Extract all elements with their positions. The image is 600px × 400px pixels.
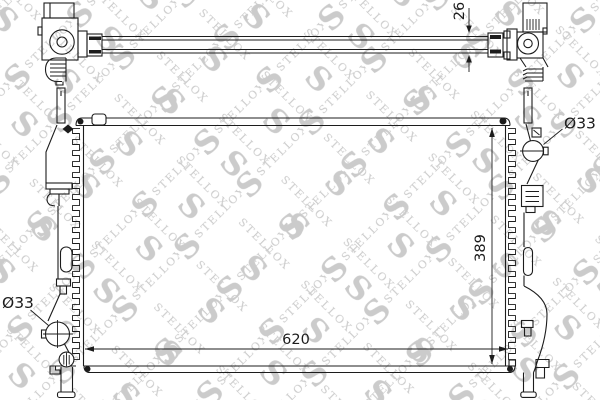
cap-end-boss (500, 118, 507, 125)
inlet-diameter-label: Ø33 (564, 115, 596, 133)
cap-end-boss (507, 366, 513, 372)
dimension-26-label: 26 (452, 2, 468, 20)
crossbar-right-hatch (490, 35, 501, 39)
mounting-foot-base (521, 392, 536, 397)
outlet-diameter-label: Ø33 (2, 294, 34, 312)
crossbar-left-hatch (89, 37, 101, 41)
crossbar-left-hatch (89, 50, 101, 54)
cap-step (509, 360, 516, 366)
cap-end-boss (85, 366, 91, 372)
dimension-620-label: 620 (282, 332, 310, 348)
pipe-side-tab (544, 147, 549, 155)
crossbar-right-hatch (490, 50, 501, 54)
cap-end-boss (78, 119, 84, 125)
radiator-technical-drawing: S STELLOX S STELLOX (0, 0, 600, 400)
mounting-foot-base (58, 392, 76, 398)
serration-teeth (508, 128, 516, 363)
filler-tab (92, 114, 106, 125)
dimension-389-label: 389 (473, 234, 489, 262)
serration-teeth (72, 128, 80, 363)
radiator-technical-drawing-page: S STELLOX S STELLOX (0, 0, 600, 400)
